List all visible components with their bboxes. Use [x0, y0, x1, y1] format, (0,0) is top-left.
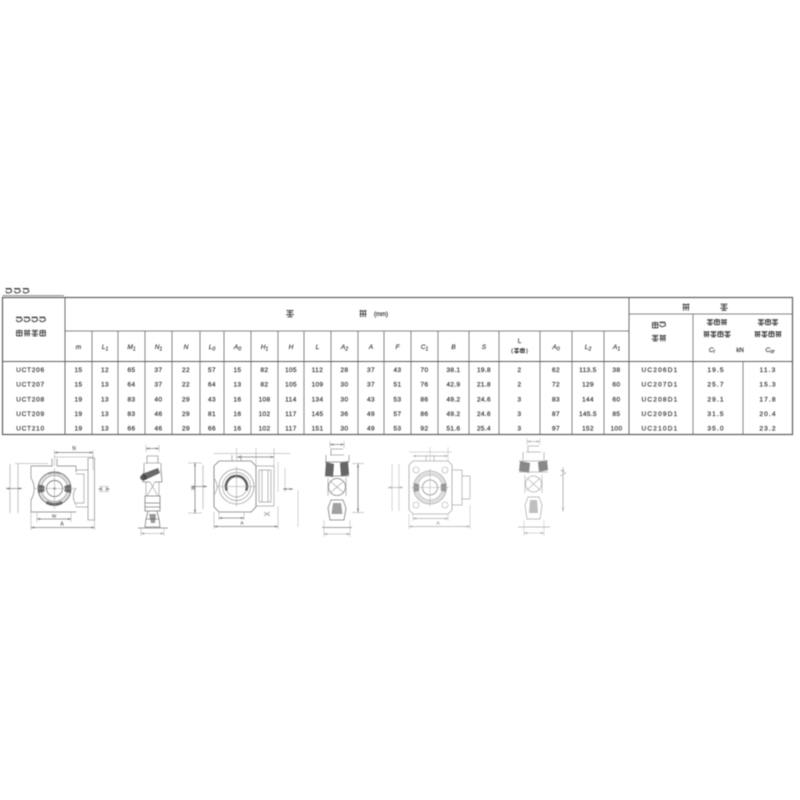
svg-text:49: 49 [367, 426, 375, 433]
svg-text:134: 134 [312, 396, 324, 403]
svg-text:20.4: 20.4 [759, 411, 776, 418]
svg-text:UCT207: UCT207 [16, 382, 45, 389]
svg-text:28: 28 [341, 367, 349, 374]
svg-text:UCT208: UCT208 [16, 396, 45, 403]
svg-text:30: 30 [341, 426, 349, 433]
svg-text:51.6: 51.6 [446, 426, 460, 433]
svg-text:L: L [518, 338, 522, 345]
svg-text:15: 15 [75, 382, 83, 389]
svg-text:62: 62 [552, 367, 560, 374]
svg-text:S: S [482, 344, 487, 351]
svg-text:UC208D1: UC208D1 [642, 396, 679, 403]
svg-text:42.9: 42.9 [446, 382, 460, 389]
svg-text:13: 13 [101, 396, 109, 403]
svg-text:102: 102 [259, 426, 271, 433]
svg-text:86: 86 [421, 411, 429, 418]
svg-text:72: 72 [552, 382, 560, 389]
svg-text:L: L [316, 344, 320, 351]
svg-text:38.1: 38.1 [446, 367, 460, 374]
svg-text:A: A [368, 344, 374, 351]
svg-text:21.8: 21.8 [477, 382, 491, 389]
svg-text:117: 117 [285, 411, 296, 418]
svg-text:m: m [76, 344, 82, 351]
svg-text:(mm): (mm) [374, 312, 388, 318]
svg-text:35.0: 35.0 [707, 426, 724, 433]
svg-text:24.6: 24.6 [477, 396, 491, 403]
svg-text:16: 16 [234, 411, 242, 418]
svg-text:57: 57 [394, 411, 402, 418]
svg-text:49.2: 49.2 [446, 411, 460, 418]
svg-text:15: 15 [234, 367, 242, 374]
svg-text:25.7: 25.7 [707, 382, 724, 389]
svg-text:B: B [451, 344, 456, 351]
svg-text:82: 82 [261, 367, 269, 374]
svg-text:UC207D1: UC207D1 [642, 382, 679, 389]
svg-text:145.5: 145.5 [579, 411, 597, 418]
svg-text:(: ( [511, 349, 513, 355]
svg-text:2: 2 [518, 382, 522, 389]
svg-text:2: 2 [518, 367, 522, 374]
svg-text:30: 30 [341, 382, 349, 389]
svg-text:64: 64 [208, 382, 216, 389]
svg-text:19: 19 [75, 426, 83, 433]
svg-text:64: 64 [128, 382, 136, 389]
svg-text:15: 15 [75, 367, 83, 374]
svg-text:H: H [289, 344, 294, 351]
svg-text:kN: kN [736, 347, 744, 354]
svg-text:105: 105 [285, 382, 297, 389]
svg-text:37: 37 [367, 382, 375, 389]
svg-text:53: 53 [394, 396, 402, 403]
svg-text:60: 60 [613, 396, 621, 403]
svg-text:25.4: 25.4 [477, 426, 491, 433]
svg-text:76: 76 [421, 382, 429, 389]
svg-text:UCT206: UCT206 [16, 367, 45, 374]
svg-text:16: 16 [234, 396, 242, 403]
svg-text:13: 13 [101, 411, 109, 418]
svg-text:152: 152 [582, 426, 594, 433]
svg-text:UC206D1: UC206D1 [642, 367, 679, 374]
svg-text:100: 100 [611, 426, 623, 433]
svg-text:117: 117 [285, 426, 296, 433]
svg-text:3: 3 [518, 411, 522, 418]
svg-text:43: 43 [208, 396, 216, 403]
svg-text:87: 87 [552, 411, 560, 418]
svg-text:83: 83 [128, 411, 136, 418]
svg-text:92: 92 [421, 426, 429, 433]
svg-text:49: 49 [367, 411, 375, 418]
svg-text:22: 22 [182, 382, 190, 389]
svg-text:16: 16 [234, 426, 242, 433]
svg-text:29.1: 29.1 [707, 396, 724, 403]
svg-text:UC210D1: UC210D1 [642, 426, 679, 433]
svg-text:114: 114 [285, 396, 296, 403]
svg-text:112: 112 [312, 367, 323, 374]
svg-text:145: 145 [312, 411, 324, 418]
svg-text:151: 151 [312, 426, 324, 433]
svg-text:12: 12 [101, 367, 109, 374]
svg-text:N: N [72, 446, 76, 452]
svg-text:19: 19 [75, 411, 83, 418]
svg-text:29: 29 [182, 411, 190, 418]
svg-text:13: 13 [101, 426, 109, 433]
svg-text:70: 70 [421, 367, 429, 374]
svg-text:15.3: 15.3 [759, 382, 776, 389]
svg-text:W: W [52, 514, 57, 519]
svg-text:30: 30 [341, 396, 349, 403]
svg-text:102: 102 [259, 411, 271, 418]
svg-text:Cr: Cr [709, 347, 716, 355]
svg-text:29: 29 [182, 396, 190, 403]
svg-text:37: 37 [155, 382, 163, 389]
svg-text:17.8: 17.8 [759, 396, 776, 403]
svg-text:13: 13 [234, 382, 242, 389]
svg-text:82: 82 [261, 382, 269, 389]
svg-text:65: 65 [128, 367, 136, 374]
svg-text:UCT209: UCT209 [16, 411, 45, 418]
svg-text:105: 105 [285, 367, 297, 374]
svg-text:19.8: 19.8 [477, 367, 491, 374]
svg-text:46: 46 [155, 426, 163, 433]
svg-text:37: 37 [367, 367, 375, 374]
svg-text:109: 109 [312, 382, 324, 389]
svg-text:81: 81 [208, 411, 216, 418]
svg-text:46: 46 [155, 411, 163, 418]
svg-text:108: 108 [259, 396, 271, 403]
svg-text:29: 29 [182, 426, 190, 433]
svg-text:113.5: 113.5 [579, 367, 597, 374]
svg-text:57: 57 [208, 367, 216, 374]
svg-text:13: 13 [101, 382, 109, 389]
svg-text:22: 22 [182, 367, 190, 374]
svg-text:31.5: 31.5 [707, 411, 724, 418]
svg-text:UCT210: UCT210 [16, 426, 45, 433]
svg-text:60: 60 [613, 382, 621, 389]
svg-text:11.3: 11.3 [760, 367, 777, 374]
svg-text:40: 40 [155, 396, 163, 403]
svg-text:3: 3 [518, 396, 522, 403]
svg-text:97: 97 [552, 426, 560, 433]
svg-text:43: 43 [367, 396, 375, 403]
svg-text:37: 37 [155, 367, 163, 374]
svg-text:85: 85 [613, 411, 621, 418]
svg-text:3: 3 [518, 426, 522, 433]
svg-text:19.5: 19.5 [707, 367, 724, 374]
svg-text:53: 53 [394, 426, 402, 433]
svg-text:23.2: 23.2 [759, 426, 776, 433]
svg-text:86: 86 [421, 396, 429, 403]
svg-text:Cor: Cor [765, 347, 775, 355]
svg-text:36: 36 [341, 411, 349, 418]
svg-text:144: 144 [582, 396, 594, 403]
svg-text:49.2: 49.2 [446, 396, 460, 403]
svg-text:): ) [526, 349, 528, 355]
svg-text:38: 38 [613, 367, 621, 374]
svg-text:19: 19 [75, 396, 83, 403]
svg-text:129: 129 [582, 382, 594, 389]
svg-text:UC209D1: UC209D1 [642, 411, 679, 418]
svg-text:66: 66 [208, 426, 216, 433]
svg-text:24.6: 24.6 [477, 411, 491, 418]
svg-text:43: 43 [394, 367, 402, 374]
svg-text:N: N [184, 344, 189, 351]
svg-text:66: 66 [128, 426, 136, 433]
svg-text:51: 51 [394, 382, 402, 389]
svg-text:83: 83 [552, 396, 560, 403]
svg-text:83: 83 [128, 396, 136, 403]
